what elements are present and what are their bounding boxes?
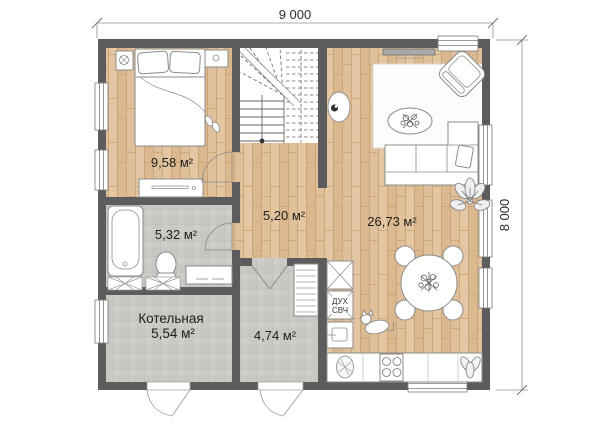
- entry-exterior-door-opening: [258, 382, 303, 390]
- height-dimension-label: 8 000: [497, 199, 512, 232]
- microwave-label: СВЧ: [332, 306, 348, 315]
- window-living-right-1: [479, 125, 492, 185]
- entry-area-label: 4,74 м²: [254, 328, 297, 343]
- pillow-right: [169, 51, 200, 74]
- window-bedroom-2: [95, 150, 108, 190]
- wall-entry-kitchen: [318, 258, 327, 382]
- hallway-floor: [240, 143, 318, 258]
- entry-closet: [294, 264, 318, 316]
- window-living-top: [438, 36, 478, 51]
- counter-basket-decor: [337, 356, 354, 378]
- living-kitchen-area-label: 26,73 м²: [367, 214, 417, 229]
- bedroom-door-opening: [232, 152, 240, 182]
- bathroom-door-opening: [232, 223, 240, 250]
- bathroom-vanity: [186, 266, 232, 284]
- boiler-room-name-label: Котельная: [138, 311, 203, 326]
- oven-microwave-tower: ДУХ СВЧ: [327, 291, 353, 319]
- oven-label: ДУХ: [332, 297, 349, 306]
- entry-door-opening: [252, 258, 287, 266]
- window-living-right-3: [479, 268, 492, 308]
- wall-interior-vertical-left: [232, 48, 240, 382]
- wall-bedroom-bathroom: [106, 197, 240, 205]
- width-dimension-label: 9 000: [279, 7, 312, 22]
- sofa-pillow: [455, 145, 473, 168]
- fridge: [327, 261, 353, 289]
- wall-stair-living: [318, 48, 327, 188]
- sink-cabinet: [327, 322, 353, 348]
- stair-newel-post: [260, 139, 265, 144]
- dresser: [139, 179, 203, 197]
- bathroom-area-label: 5,32 м²: [155, 227, 198, 242]
- hall-living-opening-floor: [318, 188, 327, 258]
- entry-exterior-door-swing: [260, 390, 303, 416]
- floor-plan-canvas: ДУХ СВЧ: [0, 0, 600, 424]
- bedroom-area-label: 9,58 м²: [151, 155, 194, 170]
- window-bedroom-1: [95, 83, 108, 130]
- stove: [380, 354, 403, 381]
- floor-plan: ДУХ СВЧ: [0, 0, 600, 424]
- nightstand-right: [205, 50, 228, 67]
- dining-set: [395, 246, 463, 320]
- boiler-room-area-label: 5,54 м²: [151, 326, 195, 341]
- boiler-exterior-door-opening: [147, 382, 190, 390]
- wall-top: [98, 39, 490, 48]
- double-bed: [135, 49, 205, 146]
- pillow-left: [137, 51, 168, 74]
- window-boiler: [95, 300, 108, 343]
- boiler-exterior-door-swing: [147, 390, 190, 416]
- bathtub: [108, 206, 143, 276]
- coffee-table: [388, 108, 432, 134]
- wall-sconce: [328, 92, 350, 122]
- hallway-area-label: 5,20 м²: [263, 208, 306, 223]
